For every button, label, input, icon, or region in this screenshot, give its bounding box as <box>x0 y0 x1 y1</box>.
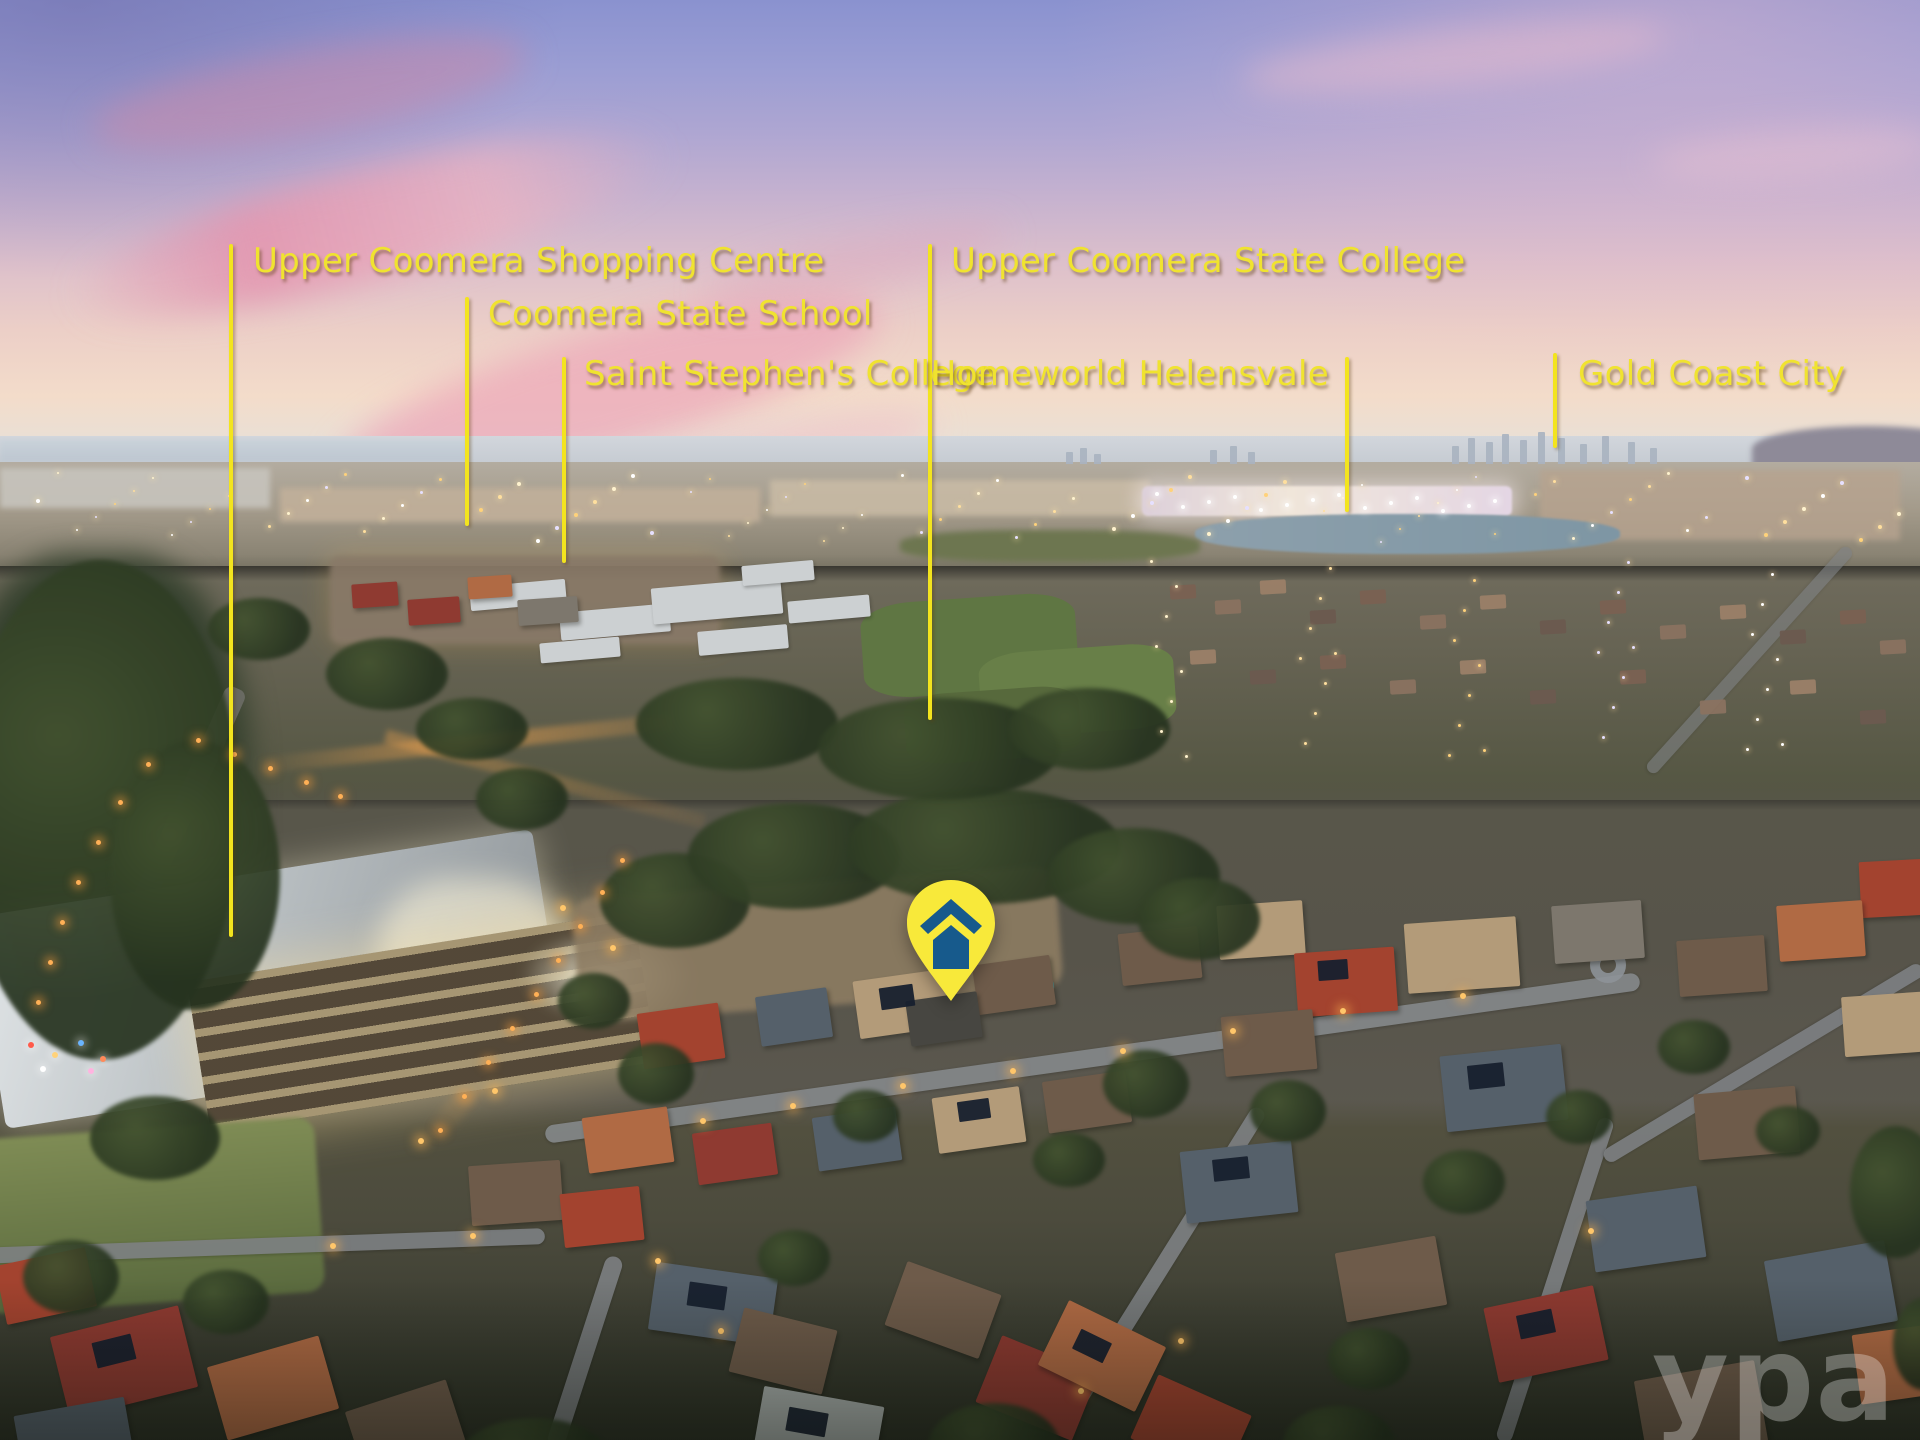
distant-house-roof <box>1860 709 1887 724</box>
street-light <box>700 1118 706 1124</box>
tree <box>1756 1106 1820 1156</box>
street <box>1644 544 1854 776</box>
skyline-tower <box>1602 436 1609 464</box>
distant-light <box>1746 748 1749 751</box>
distant-light <box>958 505 961 508</box>
distant-light <box>1766 688 1769 691</box>
house-roof <box>728 1307 837 1394</box>
label-gold-coast-city: Gold Coast City <box>1578 356 1845 393</box>
house-roof <box>1676 935 1768 997</box>
distant-light <box>1878 525 1882 529</box>
distant-light <box>1667 472 1670 475</box>
house-roof <box>755 987 833 1047</box>
distant-light <box>1686 529 1689 532</box>
skyline-tower <box>1094 454 1101 464</box>
distant-light <box>420 491 423 494</box>
tree <box>618 1043 694 1105</box>
tree <box>1658 1020 1730 1074</box>
distant-light <box>804 483 806 485</box>
distant-light <box>1185 755 1188 758</box>
street-light <box>438 1128 443 1133</box>
amusement-light <box>100 1056 106 1062</box>
distant-house-roof <box>1360 589 1387 604</box>
street-light <box>1340 1008 1346 1014</box>
pointer-line-upper-coomera-state-college <box>928 244 932 720</box>
skyline-tower <box>1230 446 1237 464</box>
distant-light <box>1245 506 1249 510</box>
distant-light <box>344 473 347 476</box>
distant-light <box>1314 712 1317 715</box>
street-light <box>510 1026 515 1031</box>
distant-light <box>1478 664 1481 667</box>
tree <box>758 1230 830 1286</box>
amusement-light <box>78 1040 84 1046</box>
distant-light <box>517 482 521 486</box>
label-upper-coomera-state-college: Upper Coomera State College <box>951 243 1466 280</box>
distant-light <box>1053 510 1056 513</box>
distant-light <box>1150 560 1153 563</box>
distant-light <box>363 530 366 533</box>
distant-light <box>1534 493 1537 496</box>
tree <box>1008 688 1170 770</box>
distant-light <box>325 486 328 489</box>
distant-light <box>498 495 502 499</box>
distant-light <box>1463 609 1466 612</box>
distant-house-roof <box>1310 609 1337 624</box>
distant-light <box>1226 519 1230 523</box>
distant-light <box>36 499 40 503</box>
house-roof <box>692 1123 778 1186</box>
distant-light <box>1150 501 1154 505</box>
skyline-tower <box>1502 434 1509 464</box>
distant-light <box>1155 645 1158 648</box>
distant-light <box>1448 754 1451 757</box>
homeworld-light <box>1493 499 1497 503</box>
school-building <box>787 594 871 623</box>
aerial-photo-stage: Upper Coomera Shopping Centre Coomera St… <box>0 0 1920 1440</box>
distant-light <box>401 504 404 507</box>
distant-house-roof <box>1530 689 1557 704</box>
distant-light <box>1131 514 1135 518</box>
street-light <box>96 840 101 845</box>
house-roof <box>345 1379 467 1440</box>
retail-roof <box>467 574 512 599</box>
homeworld-light <box>1311 498 1315 502</box>
distant-light <box>1764 533 1768 537</box>
street-light <box>486 1060 491 1065</box>
pointer-line-homeworld-helensvale <box>1345 357 1349 512</box>
distant-house-roof <box>1460 659 1487 674</box>
house-roof <box>1221 1009 1318 1077</box>
tree <box>110 740 280 1010</box>
homeworld-light <box>1363 506 1367 510</box>
retail-roof <box>351 581 399 608</box>
distant-light <box>1309 627 1312 630</box>
house-roof <box>1180 1140 1299 1223</box>
solar-panel <box>1212 1156 1250 1182</box>
distant-light <box>574 513 578 517</box>
street-light <box>48 960 53 965</box>
skyline-tower <box>1248 452 1255 464</box>
tree <box>1546 1090 1612 1144</box>
distant-house-roof <box>1320 654 1347 669</box>
house-roof <box>207 1335 339 1440</box>
distant-house-roof <box>1390 679 1417 694</box>
distant-light <box>1468 694 1471 697</box>
tree <box>1850 1126 1920 1258</box>
street-light <box>560 905 566 911</box>
distant-light <box>1629 498 1632 501</box>
tree <box>1033 1133 1105 1187</box>
street-light <box>655 1258 661 1264</box>
distant-house-roof <box>1480 594 1507 609</box>
photo-decor-layer <box>0 0 1920 1440</box>
homeworld-light <box>1415 496 1419 500</box>
distant-light <box>1597 651 1600 654</box>
distant-light <box>977 492 980 495</box>
distant-light <box>766 509 768 511</box>
street-light <box>492 1088 498 1094</box>
distant-light <box>1617 591 1620 594</box>
tree <box>476 768 568 830</box>
solar-panel <box>1317 959 1348 981</box>
pointer-line-upper-coomera-shopping-centre <box>229 244 233 937</box>
distant-light <box>1399 528 1401 530</box>
tree <box>326 638 448 710</box>
distant-light <box>1453 639 1456 642</box>
distant-light <box>95 516 97 518</box>
distant-light <box>1771 573 1774 576</box>
distant-light <box>382 517 385 520</box>
distant-light <box>1745 476 1749 480</box>
house-roof <box>559 1186 644 1248</box>
distant-light <box>728 535 730 537</box>
street-light <box>304 780 309 785</box>
agency-watermark: ypa <box>1652 1310 1896 1440</box>
distant-light <box>1475 476 1477 478</box>
distant-light <box>1859 538 1863 542</box>
house-roof <box>582 1106 675 1173</box>
amusement-light <box>52 1052 58 1058</box>
solar-panel <box>687 1281 728 1310</box>
green-flats <box>900 530 1200 562</box>
house-roof <box>1130 1374 1252 1440</box>
distant-light <box>1112 527 1116 531</box>
distant-light <box>1304 742 1307 745</box>
distant-light <box>133 490 135 492</box>
homeworld-light <box>1441 509 1445 513</box>
distant-light <box>1458 724 1461 727</box>
street-light <box>1460 993 1466 999</box>
distant-light <box>536 539 540 543</box>
distant-light <box>1180 670 1183 673</box>
distant-light <box>1456 489 1458 491</box>
street-light <box>60 920 65 925</box>
house-roof <box>1859 858 1920 918</box>
distant-light <box>861 514 863 516</box>
distant-light <box>1783 520 1787 524</box>
distant-light <box>76 529 78 531</box>
distant-light <box>1897 512 1901 516</box>
distant-light <box>190 521 192 523</box>
street-light <box>600 890 605 895</box>
distant-light <box>1648 485 1651 488</box>
distant-house-roof <box>1790 679 1817 694</box>
pointer-line-coomera-state-school <box>465 297 469 526</box>
distant-light <box>1329 567 1332 570</box>
distant-light <box>287 512 290 515</box>
house-roof <box>1776 900 1866 962</box>
street-light <box>36 1000 41 1005</box>
tree <box>833 1090 899 1142</box>
street <box>546 1254 625 1440</box>
street <box>1495 1116 1615 1440</box>
distant-light <box>1160 730 1163 733</box>
distant-light <box>306 499 309 502</box>
distant-light <box>1299 657 1302 660</box>
distant-light <box>1602 736 1605 739</box>
homeworld-light <box>1155 492 1159 496</box>
skyline-tower <box>1628 442 1635 464</box>
distant-light <box>1437 502 1439 504</box>
distant-light <box>1175 585 1178 588</box>
distant-house-roof <box>1170 584 1197 599</box>
distant-light <box>1776 658 1779 661</box>
distant-light <box>1165 615 1168 618</box>
amusement-light <box>88 1068 94 1074</box>
distant-light <box>439 478 442 481</box>
label-coomera-state-school: Coomera State School <box>488 296 873 333</box>
street-light <box>268 766 273 771</box>
skyline-tower <box>1468 438 1475 464</box>
distant-light <box>823 540 825 542</box>
lake <box>1195 514 1620 554</box>
distant-house-roof <box>1190 649 1217 664</box>
distant-light <box>268 525 271 528</box>
distant-light <box>1334 652 1337 655</box>
distant-light <box>1342 497 1344 499</box>
distant-light <box>1473 579 1476 582</box>
distant-house-roof <box>1215 599 1242 614</box>
distant-light <box>690 491 692 493</box>
street-light <box>330 1243 336 1249</box>
retail-roof <box>407 596 461 626</box>
distant-house-roof <box>1540 619 1567 634</box>
skyline-tower <box>1210 450 1217 464</box>
street-light <box>1010 1068 1016 1074</box>
street-light <box>418 1138 424 1144</box>
house-roof <box>1335 1236 1448 1323</box>
street-light <box>1120 1048 1126 1054</box>
distant-house-roof <box>1260 579 1287 594</box>
homeworld-light <box>1207 500 1211 504</box>
skyline-tower <box>1452 446 1459 464</box>
distant-light <box>1324 682 1327 685</box>
tree <box>558 973 630 1029</box>
distant-light <box>1283 480 1287 484</box>
skyline-tower <box>1650 448 1657 464</box>
distant-light <box>785 496 787 498</box>
homeworld-light <box>1389 501 1393 505</box>
skyline-tower <box>1520 440 1527 464</box>
street-light <box>76 880 81 885</box>
distant-light <box>1572 537 1575 540</box>
street-light <box>718 1328 724 1334</box>
tree <box>208 598 310 660</box>
street-light <box>1178 1338 1184 1344</box>
distant-rooftop-strip <box>770 480 1150 516</box>
distant-light <box>1034 523 1037 526</box>
house-roof <box>932 1086 1027 1154</box>
distant-light <box>996 479 999 482</box>
distant-light <box>747 522 749 524</box>
street-light <box>462 1094 467 1099</box>
distant-light <box>1607 621 1610 624</box>
tree <box>1328 1328 1410 1390</box>
tree <box>1138 878 1260 960</box>
tree <box>1103 1050 1189 1118</box>
distant-light <box>1553 480 1556 483</box>
distant-light <box>1840 481 1844 485</box>
homeworld-light <box>1233 495 1237 499</box>
tree <box>90 1096 220 1180</box>
distant-light <box>1361 484 1363 486</box>
distant-house-roof <box>1660 624 1687 639</box>
distant-light <box>920 531 923 534</box>
distant-light <box>1591 524 1594 527</box>
distant-light <box>1632 646 1635 649</box>
distant-light <box>709 478 711 480</box>
street-light <box>900 1083 906 1089</box>
house-roof <box>1294 947 1398 1018</box>
tree <box>1423 1150 1505 1214</box>
distant-light <box>1188 475 1192 479</box>
street-light <box>146 762 151 767</box>
distant-light <box>152 477 154 479</box>
street-light <box>620 858 625 863</box>
skyline-tower <box>1486 442 1493 464</box>
distant-house-roof <box>1420 614 1447 629</box>
tree <box>416 698 528 760</box>
pointer-line-saint-stephens-college <box>562 357 566 563</box>
skyline-tower <box>1066 452 1073 464</box>
distant-rooftop-strip <box>280 488 760 522</box>
homeworld-light <box>1467 504 1471 508</box>
distant-house-roof <box>1720 604 1747 619</box>
school-building <box>741 560 814 586</box>
house-roof <box>884 1261 1001 1359</box>
distant-light <box>1418 515 1420 517</box>
distant-light <box>1264 493 1268 497</box>
skyline-tower <box>1538 432 1545 464</box>
distant-light <box>1207 532 1211 536</box>
distant-light <box>1380 541 1382 543</box>
distant-light <box>1756 718 1759 721</box>
street-light <box>610 945 616 951</box>
street-light <box>1588 1228 1594 1234</box>
street-light <box>556 958 561 963</box>
distant-light <box>1072 497 1075 500</box>
distant-house-roof <box>1780 629 1807 644</box>
distant-light <box>1761 603 1764 606</box>
street-light <box>118 800 123 805</box>
distant-light <box>939 518 942 521</box>
tree <box>23 1240 119 1314</box>
distant-light <box>114 503 116 505</box>
distant-house-roof <box>1880 639 1907 654</box>
distant-house-roof <box>1250 669 1277 684</box>
distant-light <box>612 487 616 491</box>
distant-house-roof <box>1700 699 1727 714</box>
map-pin-icon <box>905 878 997 1004</box>
distant-light <box>1323 510 1325 512</box>
street-light <box>470 1233 476 1239</box>
distant-light <box>1627 561 1630 564</box>
distant-light <box>1781 743 1784 746</box>
tree <box>636 678 838 770</box>
distant-light <box>593 500 597 504</box>
skyline-tower <box>1580 444 1587 464</box>
distant-light <box>1170 700 1173 703</box>
street-light <box>578 924 583 929</box>
street-light <box>1078 1388 1084 1394</box>
house-roof <box>1551 900 1645 964</box>
street-light <box>790 1103 796 1109</box>
distant-light <box>901 474 904 477</box>
skyline-tower <box>1080 448 1087 464</box>
street-light <box>534 992 539 997</box>
distant-house-roof <box>1600 599 1627 614</box>
pointer-line-gold-coast-city <box>1553 353 1557 448</box>
distant-light <box>1612 706 1615 709</box>
label-upper-coomera-shopping-centre: Upper Coomera Shopping Centre <box>253 243 825 280</box>
house-roof <box>1404 916 1521 994</box>
distant-light <box>842 527 844 529</box>
distant-light <box>1494 533 1496 535</box>
solar-panel <box>1467 1062 1505 1090</box>
homeworld-light <box>1181 505 1185 509</box>
amusement-light <box>28 1042 34 1048</box>
house-roof <box>468 1160 564 1226</box>
street-light <box>196 738 201 743</box>
tree <box>1250 1080 1326 1142</box>
street-light <box>1230 1028 1236 1034</box>
distant-light <box>1483 749 1486 752</box>
amusement-light <box>40 1066 46 1072</box>
distant-house-roof <box>1840 609 1867 624</box>
distant-light <box>555 526 559 530</box>
house-roof <box>1586 1186 1707 1273</box>
distant-light <box>1169 488 1173 492</box>
distant-light <box>1751 633 1754 636</box>
tree <box>458 1418 610 1440</box>
distant-light <box>209 508 211 510</box>
distant-light <box>1622 676 1625 679</box>
distant-light <box>1319 597 1322 600</box>
distant-light <box>479 508 483 512</box>
street-light <box>338 794 343 799</box>
retail-roof <box>517 596 579 626</box>
distant-light <box>1015 536 1018 539</box>
house-roof <box>1841 991 1920 1057</box>
distant-light <box>1705 516 1708 519</box>
distant-light <box>631 474 635 478</box>
tree <box>1283 1406 1395 1440</box>
tree <box>183 1270 269 1334</box>
label-homeworld-helensvale: Homeworld Helensvale <box>931 356 1329 393</box>
distant-light <box>1821 494 1825 498</box>
homeworld-light <box>1285 503 1289 507</box>
